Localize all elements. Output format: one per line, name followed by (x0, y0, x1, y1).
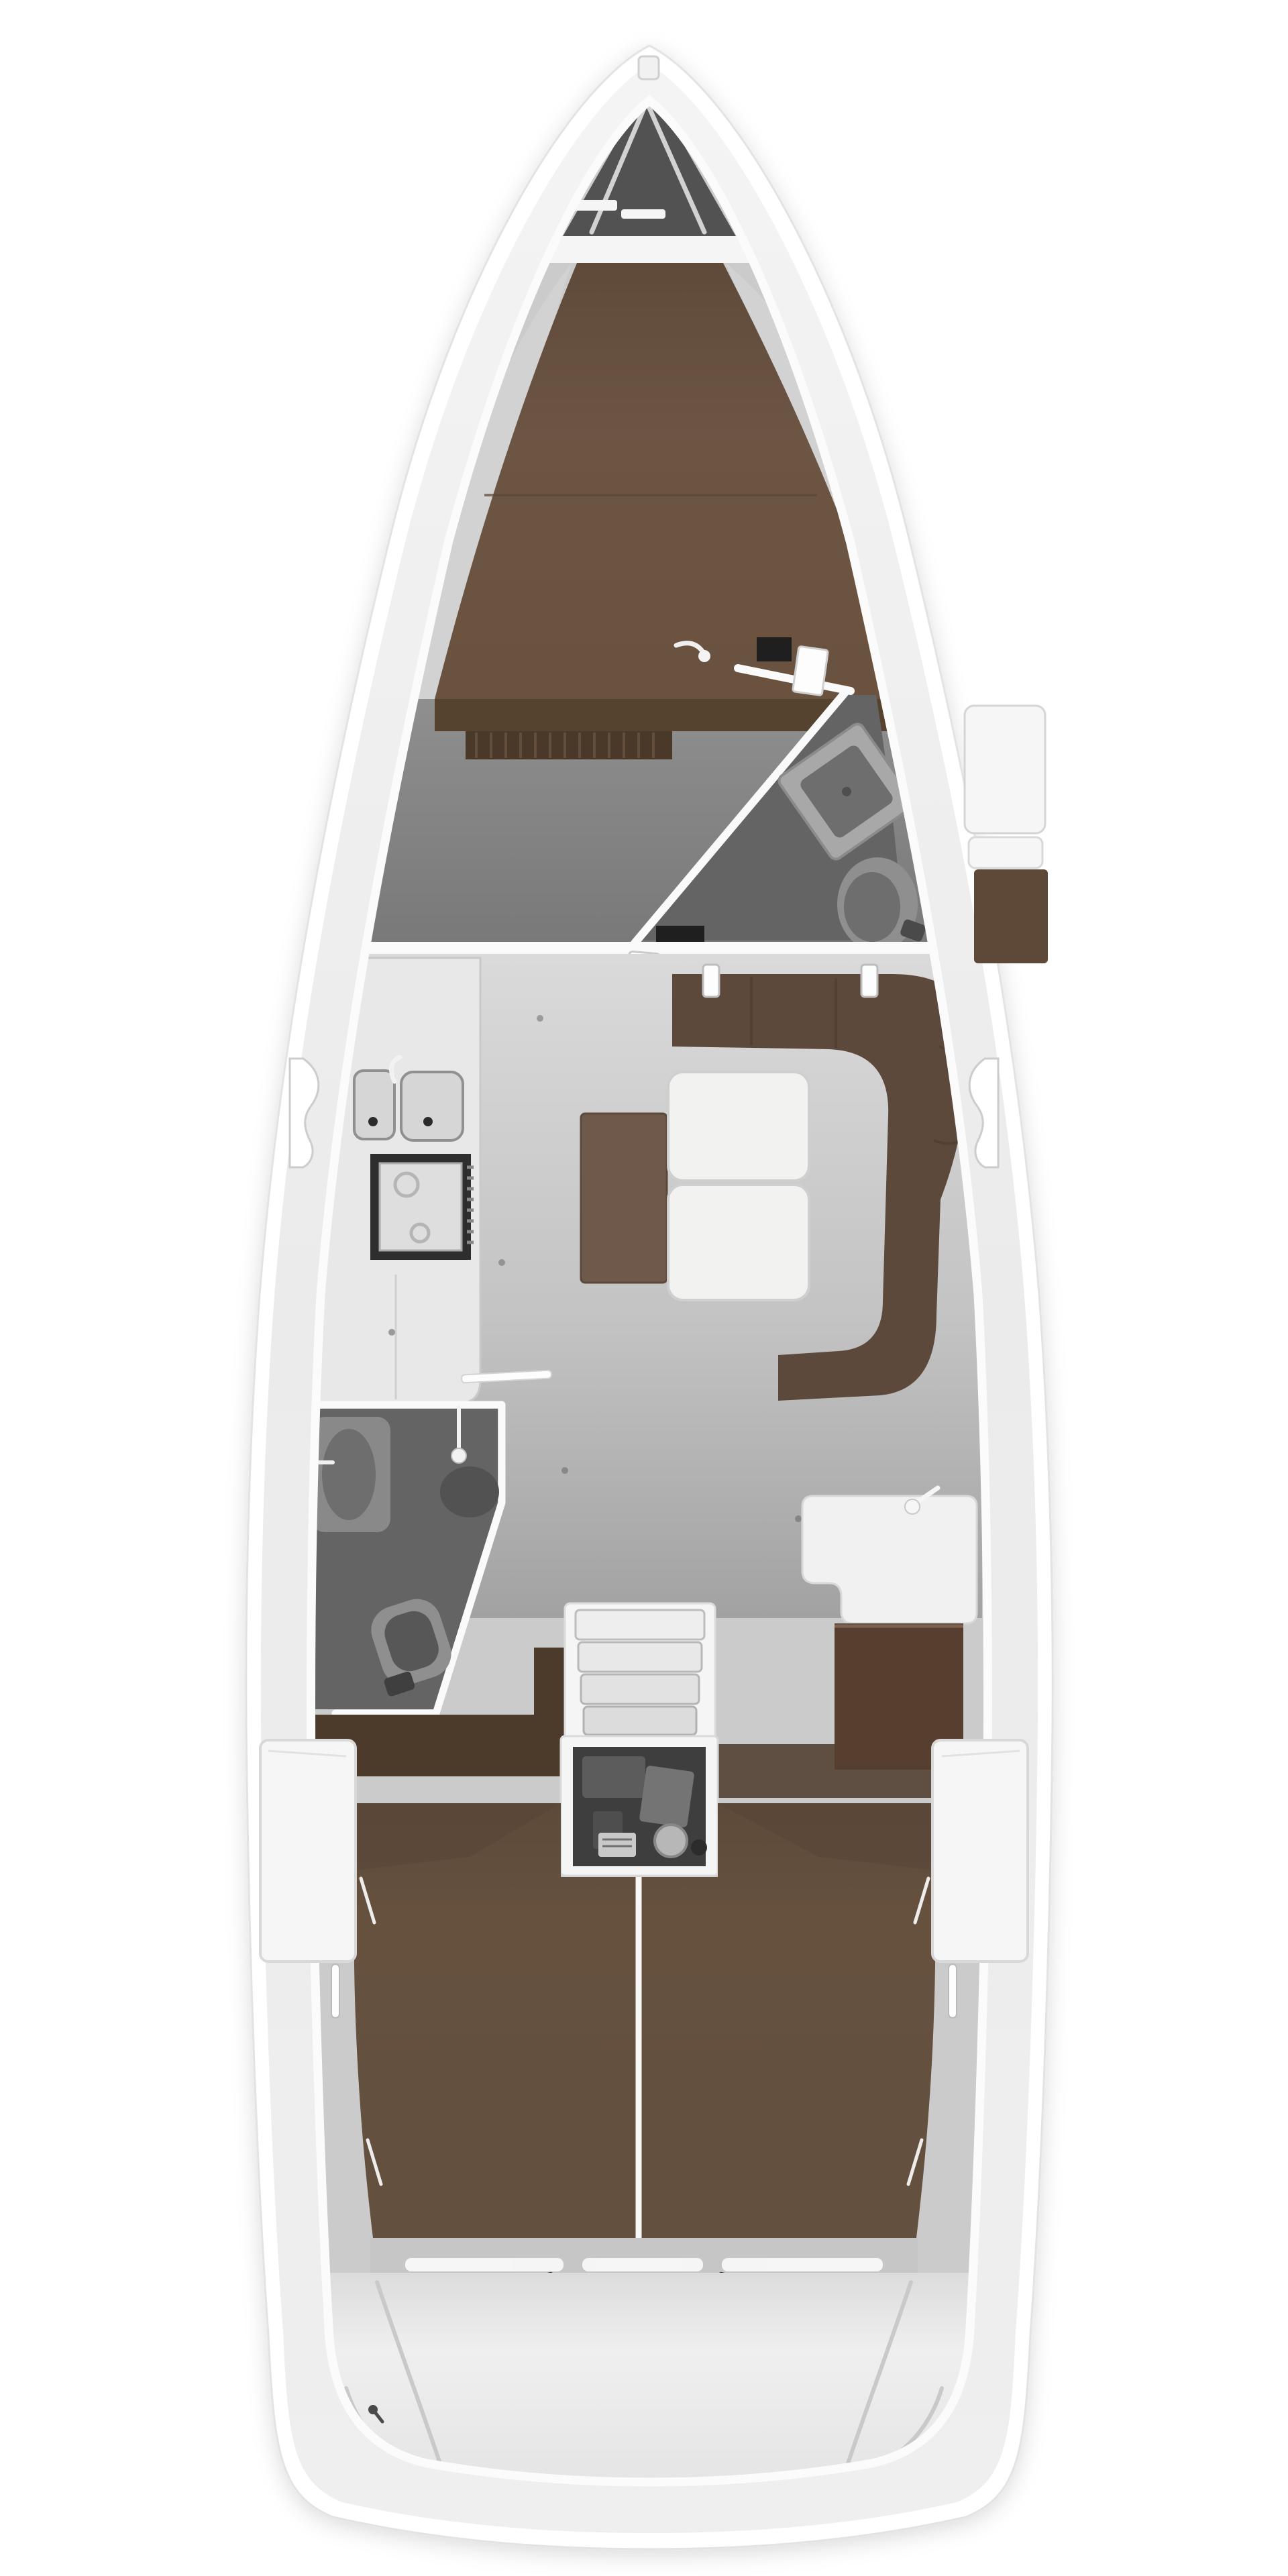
interior-group (235, 40, 1053, 2522)
sink-drain-2 (423, 1117, 433, 1126)
settee-hook-2 (861, 965, 877, 997)
engine-flywheel (655, 1825, 687, 1857)
port-wardrobe (260, 1740, 356, 1962)
step-tread-4 (584, 1707, 696, 1735)
galley-sink-small (354, 1071, 394, 1139)
engine-label-plate (598, 1833, 636, 1857)
galley-stove (370, 1154, 474, 1260)
companionway-steps (565, 1603, 715, 1743)
salon-table-aft (668, 1185, 809, 1300)
galley-sink-large (401, 1072, 463, 1140)
louver-locker (466, 731, 672, 759)
starboard-cabinet (974, 869, 1048, 963)
salon-tables (668, 1072, 809, 1300)
engine-pulley (691, 1839, 707, 1856)
shower-shadow (440, 1466, 499, 1517)
starboard-deck-locker-small (969, 837, 1042, 868)
yacht-floor-plan (0, 0, 1288, 2576)
engine-bay (561, 1736, 718, 1876)
galley-cabinet-knob (388, 1329, 395, 1336)
port-wardrobe-handle (331, 1964, 339, 2018)
starboard-deck-locker (965, 706, 1045, 833)
step-tread-3 (581, 1674, 699, 1704)
salon-side-table (581, 1114, 667, 1283)
step-tread-2 (578, 1642, 702, 1672)
salon-table-fore (668, 1072, 809, 1181)
engine-manifold (639, 1765, 695, 1827)
bow-ledge-starboard (621, 209, 665, 219)
head-vent (757, 637, 792, 661)
settee-hook-1 (703, 965, 719, 997)
sink-drain-1 (368, 1117, 378, 1126)
step-tread-1 (576, 1610, 704, 1640)
starboard-wardrobe (932, 1740, 1028, 1962)
floor-plan-canvas (0, 0, 1288, 2576)
wood-floor-step-side (534, 1648, 565, 1748)
anchor-bulkhead (545, 236, 754, 263)
starboard-wardrobe-handle (949, 1964, 957, 2018)
head-door-leaf (792, 646, 828, 695)
shelf-highlights (405, 2258, 883, 2271)
cabin-doorway (656, 926, 704, 943)
bow-fitting (639, 56, 659, 79)
engine-block (582, 1756, 645, 1798)
